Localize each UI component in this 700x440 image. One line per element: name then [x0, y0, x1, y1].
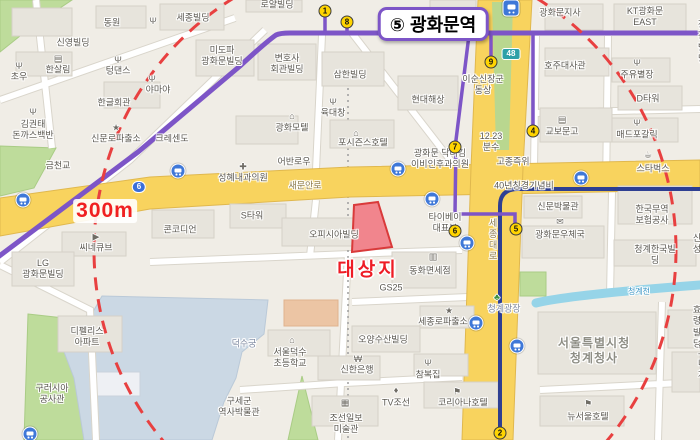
subway-exit-marker: 9	[485, 56, 498, 69]
subway-exit-marker: 7	[449, 141, 462, 154]
bus-stop-icon	[391, 162, 406, 177]
subway-exit-marker: 6	[449, 225, 462, 238]
station-name: 광화문역	[410, 15, 476, 35]
station-label: ⑤ 광화문역	[378, 7, 489, 41]
bus-stop-icon	[425, 192, 440, 207]
bus-stop-icon	[16, 193, 31, 208]
subway-station-icon	[503, 0, 520, 17]
subway-exit-marker: 8	[341, 16, 354, 29]
route-shield: 6	[132, 181, 146, 193]
map-canvas[interactable]: 동원세종빌딩로얄빌딩신영빌딩미도파 광화문빌딩한글회관신문로파출소크레센도변호사…	[0, 0, 700, 440]
site-annotation: 대상지	[337, 255, 398, 282]
bus-stop-icon	[171, 164, 186, 179]
subway-exit-marker: 2	[494, 427, 507, 440]
bus-stop-icon	[23, 427, 38, 440]
subway-exit-marker: 1	[319, 5, 332, 18]
distance-annotation: 300m	[73, 199, 137, 223]
subway-exit-marker: 5	[510, 223, 523, 236]
route-shield: 48	[502, 48, 521, 60]
bus-stop-icon	[460, 236, 475, 251]
bus-stop-icon	[510, 339, 525, 354]
bus-stop-icon	[469, 316, 484, 331]
subway-exit-marker: 4	[527, 125, 540, 138]
bus-stop-icon	[574, 171, 589, 186]
line5-badge: ⑤	[390, 15, 405, 35]
